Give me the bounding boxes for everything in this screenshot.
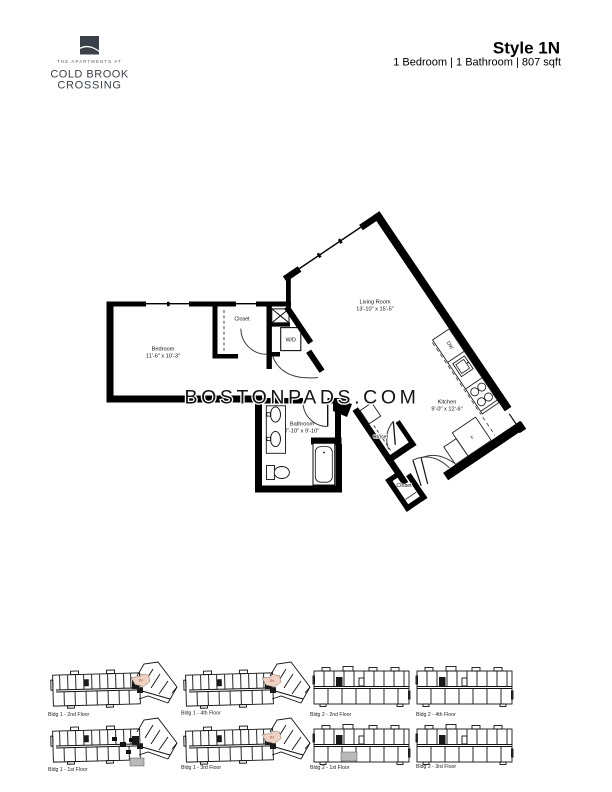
- svg-text:Bldg 2 - 2nd Floor: Bldg 2 - 2nd Floor: [310, 712, 352, 718]
- svg-text:Bldg 2 - 3rd Floor: Bldg 2 - 3rd Floor: [416, 764, 456, 770]
- svg-text:Bldg 2 - 4th Floor: Bldg 2 - 4th Floor: [416, 712, 456, 718]
- svg-text:Bldg 1 - 1st Floor: Bldg 1 - 1st Floor: [48, 767, 88, 773]
- svg-text:Bldg 1 - 3rd Floor: Bldg 1 - 3rd Floor: [181, 765, 221, 771]
- svg-text:Bedroom: Bedroom: [152, 347, 175, 353]
- svg-text:Kitchen: Kitchen: [438, 400, 457, 406]
- svg-text:Bldg 2 - 1st Floor: Bldg 2 - 1st Floor: [310, 765, 350, 771]
- svg-text:W/D: W/D: [285, 338, 296, 344]
- svg-text:THE APARTMENTS AT: THE APARTMENTS AT: [57, 59, 122, 64]
- svg-text:11'-6" x 10'-3": 11'-6" x 10'-3": [146, 354, 180, 360]
- svg-text:CROSSING: CROSSING: [57, 80, 121, 92]
- svg-text:Closet: Closet: [373, 435, 389, 441]
- svg-text:BOSTONPADS.COM: BOSTONPADS.COM: [185, 387, 420, 409]
- svg-text:Bathroom: Bathroom: [290, 422, 315, 428]
- svg-text:Style 1N: Style 1N: [493, 39, 560, 58]
- svg-text:Living Room: Living Room: [359, 300, 390, 306]
- svg-text:1N: 1N: [269, 679, 274, 683]
- svg-text:Closet: Closet: [396, 483, 412, 489]
- svg-text:Bldg 1 - 4th Floor: Bldg 1 - 4th Floor: [181, 711, 221, 717]
- svg-text:7'-10" x 9'-10": 7'-10" x 9'-10": [285, 429, 319, 435]
- svg-text:1N: 1N: [269, 736, 274, 740]
- svg-text:9'-0" x 12'-6": 9'-0" x 12'-6": [431, 407, 462, 413]
- svg-text:13'-10" x 15'-5": 13'-10" x 15'-5": [356, 307, 394, 313]
- svg-text:1 Bedroom | 1 Bathroom | 807 s: 1 Bedroom | 1 Bathroom | 807 sqft: [393, 57, 561, 69]
- svg-text:Closet: Closet: [234, 317, 250, 323]
- svg-text:Bldg 1 - 2nd Floor: Bldg 1 - 2nd Floor: [48, 712, 90, 718]
- svg-text:1N: 1N: [138, 679, 143, 683]
